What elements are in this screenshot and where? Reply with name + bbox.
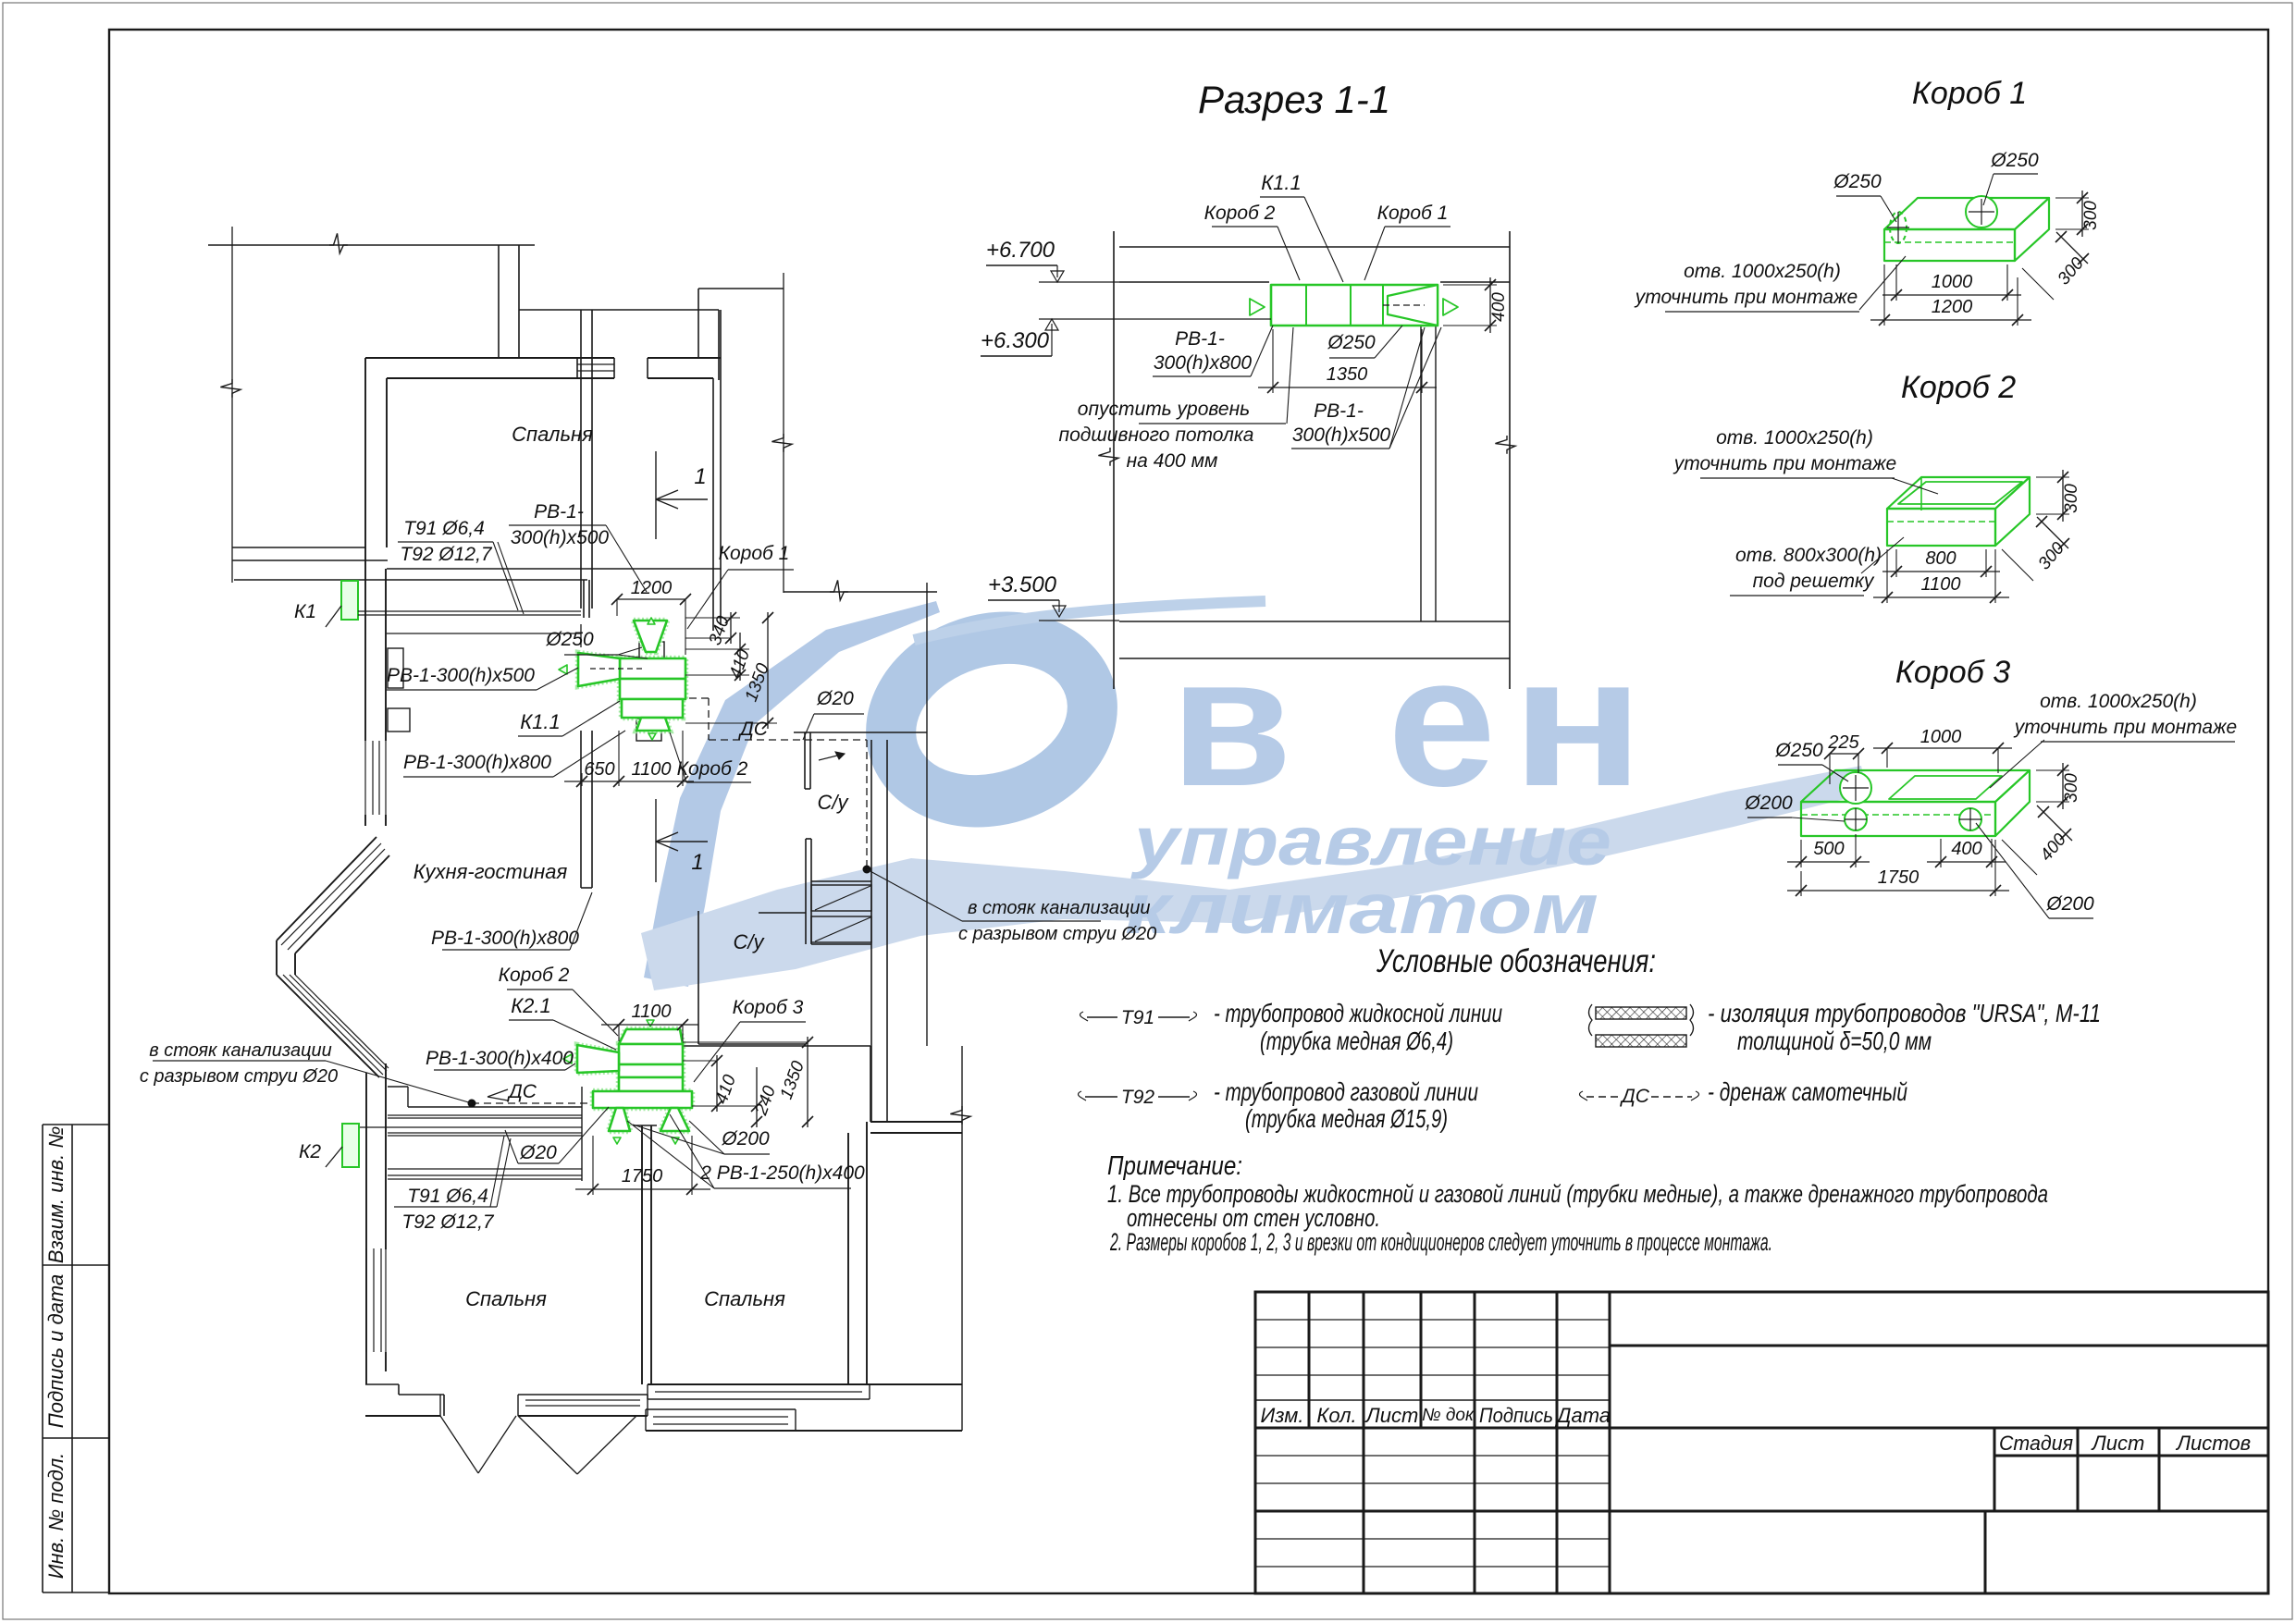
svg-text:Т91 Ø6,4: Т91 Ø6,4 [407,1186,488,1207]
svg-text:Спальня: Спальня [704,1287,785,1310]
svg-text:1200: 1200 [631,578,673,598]
svg-text:300(h)x800: 300(h)x800 [1154,352,1253,374]
svg-text:2 РВ-1-250(h)x400: 2 РВ-1-250(h)x400 [699,1162,865,1184]
svg-text:650: 650 [584,759,614,780]
svg-text:ДС: ДС [1620,1086,1650,1107]
svg-text:225: 225 [1827,732,1859,753]
svg-text:К2.1: К2.1 [511,994,551,1017]
svg-text:Примечание:: Примечание: [1107,1151,1242,1181]
svg-text:1200: 1200 [1932,297,1973,317]
svg-text:800: 800 [1925,548,1956,569]
svg-text:Взаим. инв. №: Взаим. инв. № [44,1126,68,1263]
svg-text:Изм.: Изм. [1261,1404,1304,1427]
svg-text:Лист: Лист [2091,1432,2145,1455]
svg-text:- дренаж самотечный: - дренаж самотечный [1708,1077,1907,1106]
svg-text:Т91 Ø6,4: Т91 Ø6,4 [403,518,485,539]
svg-text:Т92 Ø12,7: Т92 Ø12,7 [400,544,493,565]
svg-text:Ø20: Ø20 [519,1142,557,1163]
svg-text:- трубопровод газовой линии: - трубопровод газовой линии [1214,1077,1478,1106]
svg-text:РВ-1-300(h)x800: РВ-1-300(h)x800 [403,752,551,773]
svg-text:1100: 1100 [631,759,671,780]
svg-text:300: 300 [2062,773,2081,803]
svg-text:Условные обозначения:: Условные обозначения: [1376,943,1656,979]
svg-text:уточнить при монтаже: уточнить при монтаже [1634,287,1858,308]
svg-text:(трубка медная Ø15,9): (трубка медная Ø15,9) [1245,1104,1448,1133]
svg-text:РВ-1-300(h)x500: РВ-1-300(h)x500 [387,665,535,686]
svg-text:400: 400 [1951,839,1981,859]
svg-text:500: 500 [1813,839,1844,859]
svg-text:Ø200: Ø200 [721,1128,770,1150]
svg-text:Разрез 1-1: Разрез 1-1 [1198,78,1390,121]
svg-text:Дата: Дата [1554,1404,1611,1427]
svg-text:(трубка медная Ø6,4): (трубка медная Ø6,4) [1260,1027,1453,1055]
svg-text:Ø200: Ø200 [1744,793,1793,814]
svg-text:отв. 1000x250(h): отв. 1000x250(h) [1684,261,1841,282]
svg-text:Короб 2: Короб 2 [1901,370,2016,405]
svg-text:отв. 1000x250(h): отв. 1000x250(h) [2040,691,2197,712]
svg-text:300(h)x500: 300(h)x500 [511,527,610,548]
svg-text:Подпись и дата: Подпись и дата [44,1274,68,1428]
svg-text:Короб 1: Короб 1 [1912,76,2027,111]
svg-text:300: 300 [2062,484,2081,513]
svg-text:400: 400 [1489,292,1509,322]
svg-text:с разрывом струи Ø20: с разрывом струи Ø20 [958,924,1156,944]
svg-text:Стадия: Стадия [1999,1432,2073,1455]
svg-text:Ø20: Ø20 [816,688,854,709]
svg-text:Спальня: Спальня [512,423,593,446]
svg-text:С/у: С/у [734,930,766,953]
svg-text:Ø250: Ø250 [1833,171,1882,192]
svg-text:ДС: ДС [738,719,769,740]
svg-text:в стояк канализации: в стояк канализации [968,898,1151,918]
svg-text:в: в [1170,619,1292,825]
svg-text:Ø200: Ø200 [2045,893,2094,915]
svg-text:1000: 1000 [1920,727,1962,747]
svg-text:1100: 1100 [1920,574,1960,595]
svg-text:2. Размеры коробов 1, 2, 3 и в: 2. Размеры коробов 1, 2, 3 и врезки от к… [1109,1228,1772,1256]
svg-text:Кухня-гостиная: Кухня-гостиная [414,860,568,883]
svg-text:подшивного потолка: подшивного потолка [1059,424,1254,446]
svg-text:Короб 2: Короб 2 [677,758,748,780]
svg-text:РВ-1-300(h)x800: РВ-1-300(h)x800 [431,928,579,949]
svg-text:К1.1: К1.1 [1261,171,1302,194]
svg-text:+3.500: +3.500 [988,572,1057,597]
svg-text:Короб 3: Короб 3 [1895,655,2010,690]
svg-text:К2: К2 [299,1141,321,1162]
svg-text:РВ-1-: РВ-1- [1175,328,1225,350]
svg-text:К1.1: К1.1 [520,710,561,733]
svg-text:управление: управление [1129,803,1611,879]
svg-text:Короб 3: Короб 3 [733,997,804,1018]
svg-text:Лист: Лист [1364,1404,1419,1427]
svg-text:ДС: ДС [507,1081,537,1102]
svg-text:С/у: С/у [818,791,850,814]
svg-text:1000: 1000 [1932,272,1973,292]
svg-text:Листов: Листов [2175,1432,2251,1455]
svg-text:Подпись: Подпись [1479,1404,1553,1427]
svg-text:отв. 1000x250(h): отв. 1000x250(h) [1716,427,1873,449]
svg-text:РВ-1-: РВ-1- [534,501,584,523]
svg-text:Инв. № подл.: Инв. № подл. [44,1453,68,1580]
svg-text:Короб 2: Короб 2 [499,965,570,986]
svg-text:опустить уровень: опустить уровень [1078,399,1250,420]
svg-text:1100: 1100 [631,1002,671,1022]
svg-text:Кол.: Кол. [1316,1404,1356,1427]
svg-text:Спальня: Спальня [465,1287,547,1310]
svg-text:РВ-1-: РВ-1- [1314,400,1364,422]
svg-text:+6.300: +6.300 [981,328,1050,353]
svg-text:1750: 1750 [622,1166,663,1187]
svg-text:под решетку: под решетку [1753,571,1875,592]
svg-text:Короб 1: Короб 1 [719,543,790,564]
svg-text:климатом: климатом [1125,869,1599,949]
svg-text:- трубопровод жидкосной линии: - трубопровод жидкосной линии [1214,999,1502,1027]
svg-text:1350: 1350 [1327,364,1368,385]
svg-text:н: н [1512,619,1644,825]
svg-text:Короб 1: Короб 1 [1377,203,1449,224]
svg-text:1: 1 [694,464,706,489]
svg-text:Т92: Т92 [1121,1087,1155,1108]
svg-text:с разрывом струи Ø20: с разрывом струи Ø20 [140,1066,338,1087]
svg-text:РВ-1-300(h)x400: РВ-1-300(h)x400 [426,1048,574,1069]
svg-text:уточнить при монтаже: уточнить при монтаже [2013,717,2237,738]
svg-text:на 400 мм: на 400 мм [1127,450,1218,472]
svg-text:отв. 800x300(h): отв. 800x300(h) [1735,545,1882,566]
svg-text:+6.700: +6.700 [986,238,1055,263]
svg-text:уточнить при монтаже: уточнить при монтаже [1673,453,1896,474]
svg-text:Т91: Т91 [1121,1007,1154,1028]
svg-text:в стояк канализации: в стояк канализации [149,1040,332,1061]
svg-text:толщиной δ=50,0 мм: толщиной δ=50,0 мм [1737,1027,1932,1055]
svg-text:1750: 1750 [1878,867,1920,888]
svg-text:Короб 2: Короб 2 [1204,203,1276,224]
svg-text:Ø250: Ø250 [1990,150,2039,171]
svg-text:300(h)x500: 300(h)x500 [1292,424,1391,446]
svg-text:Ø250: Ø250 [1327,332,1376,353]
svg-text:К1: К1 [294,601,316,622]
svg-text:е: е [1388,619,1496,825]
svg-text:- изоляция трубопроводов "URSA: - изоляция трубопроводов "URSA", М-11 [1708,999,2101,1027]
svg-text:300: 300 [2081,201,2101,230]
svg-text:Ø250: Ø250 [545,629,594,650]
svg-text:Ø250: Ø250 [1774,740,1823,761]
svg-text:№ док: № док [1422,1406,1475,1425]
svg-text:Т92 Ø12,7: Т92 Ø12,7 [401,1211,495,1233]
svg-text:1: 1 [691,850,703,875]
